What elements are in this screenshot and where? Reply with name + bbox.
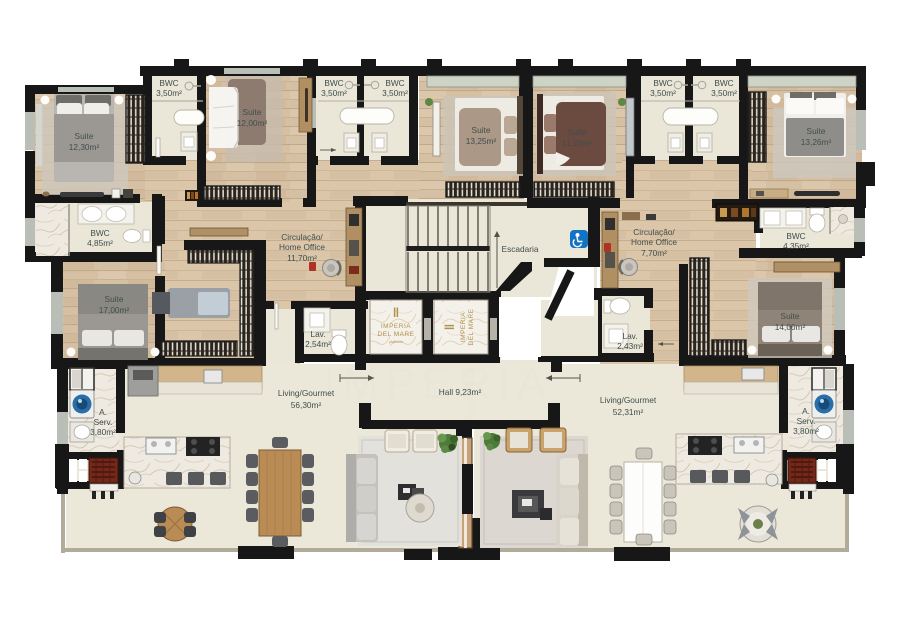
svg-text:Living/Gourmet: Living/Gourmet bbox=[600, 395, 657, 405]
svg-text:12,00m²: 12,00m² bbox=[237, 118, 268, 128]
svg-text:2,54m²: 2,54m² bbox=[305, 339, 331, 349]
svg-text:Serv.: Serv. bbox=[797, 416, 816, 426]
svg-text:BWC: BWC bbox=[385, 78, 404, 88]
svg-text:A.: A. bbox=[802, 406, 810, 416]
svg-text:17,00m²: 17,00m² bbox=[99, 305, 130, 315]
svg-text:BWC: BWC bbox=[90, 228, 109, 238]
svg-text:56,30m²: 56,30m² bbox=[291, 400, 322, 410]
svg-text:Lav.: Lav. bbox=[622, 331, 637, 341]
svg-text:3,50m²: 3,50m² bbox=[711, 88, 737, 98]
svg-text:11,70m²: 11,70m² bbox=[287, 253, 317, 263]
svg-text:Suite: Suite bbox=[243, 107, 262, 117]
svg-text:Living/Gourmet: Living/Gourmet bbox=[278, 388, 335, 398]
svg-text:12,30m²: 12,30m² bbox=[69, 142, 100, 152]
svg-text:Suite: Suite bbox=[472, 125, 491, 135]
svg-text:14,00m²: 14,00m² bbox=[775, 322, 806, 332]
svg-text:Lav.: Lav. bbox=[310, 329, 325, 339]
svg-text:2,43m²: 2,43m² bbox=[617, 341, 643, 351]
svg-text:7,70m²: 7,70m² bbox=[641, 248, 667, 258]
svg-text:3,50m²: 3,50m² bbox=[321, 88, 347, 98]
svg-text:Suite: Suite bbox=[807, 126, 826, 136]
svg-text:IMPERIA: IMPERIA bbox=[381, 323, 411, 330]
svg-text:Serv.: Serv. bbox=[94, 417, 113, 427]
svg-text:IMPERIA: IMPERIA bbox=[323, 359, 553, 408]
svg-text:Suite: Suite bbox=[568, 127, 587, 137]
svg-text:52,31m²: 52,31m² bbox=[613, 407, 644, 417]
svg-text:A.: A. bbox=[99, 407, 107, 417]
svg-text:Escadaria: Escadaria bbox=[502, 244, 539, 254]
svg-text:Suite: Suite bbox=[75, 131, 94, 141]
svg-text:3,80m²: 3,80m² bbox=[90, 427, 116, 437]
svg-text:Circulação/: Circulação/ bbox=[633, 227, 675, 237]
svg-text:Home Office: Home Office bbox=[279, 242, 325, 252]
svg-text:3,80m²: 3,80m² bbox=[793, 426, 819, 436]
svg-text:11,20m²: 11,20m² bbox=[562, 138, 592, 148]
svg-text:4,85m²: 4,85m² bbox=[87, 238, 113, 248]
svg-text:IMPERIA: IMPERIA bbox=[460, 312, 467, 342]
svg-text:13,25m²: 13,25m² bbox=[466, 136, 497, 146]
svg-text:3,50m²: 3,50m² bbox=[382, 88, 408, 98]
svg-text:platinum: platinum bbox=[389, 340, 402, 344]
svg-text:‖: ‖ bbox=[393, 305, 399, 320]
svg-text:BWC: BWC bbox=[786, 231, 805, 241]
svg-text:BWC: BWC bbox=[159, 78, 178, 88]
svg-text:Suite: Suite bbox=[781, 311, 800, 321]
svg-text:BWC: BWC bbox=[324, 78, 343, 88]
svg-text:Hall 9,23m²: Hall 9,23m² bbox=[439, 387, 482, 397]
svg-text:DEL MARE: DEL MARE bbox=[468, 308, 475, 345]
svg-text:BWC: BWC bbox=[653, 78, 672, 88]
svg-text:Suite: Suite bbox=[105, 294, 124, 304]
svg-text:Home Office: Home Office bbox=[631, 237, 677, 247]
svg-text:‖: ‖ bbox=[442, 324, 457, 330]
svg-text:3,50m²: 3,50m² bbox=[156, 88, 182, 98]
svg-text:Circulação/: Circulação/ bbox=[281, 232, 323, 242]
svg-text:3,50m²: 3,50m² bbox=[650, 88, 676, 98]
svg-text:BWC: BWC bbox=[714, 78, 733, 88]
svg-text:13,26m²: 13,26m² bbox=[801, 137, 832, 147]
svg-text:DEL MARE: DEL MARE bbox=[378, 331, 415, 338]
svg-text:4,35m²: 4,35m² bbox=[783, 241, 809, 251]
